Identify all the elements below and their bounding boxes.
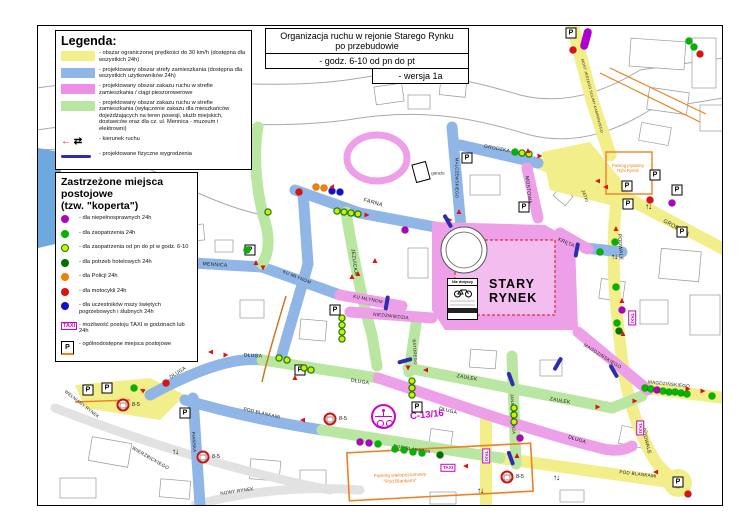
street-label: ZAUŁEK bbox=[456, 373, 478, 383]
direction-arrow-icon: ▲ bbox=[259, 264, 267, 273]
street-label: DŁUGA bbox=[350, 378, 369, 387]
taxi-stand-label: TAXI bbox=[440, 464, 455, 472]
parking-legend-item: P- ogólnodostępne miejsca postojowe bbox=[61, 341, 192, 355]
parking-spot-dot-yg bbox=[348, 210, 355, 217]
parking-spot-dot-yg bbox=[301, 365, 308, 372]
public-parking-icon: P bbox=[462, 153, 473, 164]
no-stopping-hours: 8-5 bbox=[132, 402, 140, 408]
direction-arrow-icon: ▲ bbox=[222, 351, 231, 359]
parking-legend-items: - dla niepełnosprawnych 24h- dla zaopatr… bbox=[61, 215, 192, 355]
legend-items: - obszar ograniczonej prędkości do 30 km… bbox=[61, 50, 246, 162]
legend-item-text: - obszar ograniczonej prędkości do 30 km… bbox=[99, 50, 246, 63]
parking-spot-dot-purple bbox=[619, 307, 626, 314]
street-label: BATOREGO bbox=[412, 339, 419, 365]
sign-bar bbox=[450, 304, 475, 307]
legend-item: - projektowany obszar zakazu ruchu w str… bbox=[61, 100, 246, 133]
direction-arrow-icon: ▲ bbox=[631, 397, 640, 405]
margin-left bbox=[0, 0, 37, 530]
public-parking-icon: P bbox=[650, 170, 661, 181]
parking-legend-item: TAXI- możliwość postoju TAXI w godzinach… bbox=[61, 322, 192, 335]
direction-arrow-icon: ▲ bbox=[404, 364, 412, 373]
direction-arrow-icon: ▲ bbox=[136, 384, 148, 396]
special-label: garaże bbox=[418, 170, 458, 175]
parking-dot-dkgreen bbox=[61, 259, 79, 267]
parking-spot-dot-green bbox=[709, 393, 716, 400]
direction-arrow-icon: ▲ bbox=[612, 224, 620, 233]
barrier-mark bbox=[384, 295, 390, 310]
public-parking-icon: P bbox=[672, 185, 683, 196]
parking-spot-dot-yg bbox=[339, 329, 346, 336]
parking-spot-dot-green bbox=[244, 247, 251, 254]
public-parking-icon: P bbox=[180, 408, 191, 419]
title-hours: - godz. 6-10 od pn do pt bbox=[265, 53, 469, 69]
parking-legend-item-text: - dla zaopatrzenia od pn do pt w godz. 6… bbox=[79, 244, 188, 251]
parking-spot-dot-yg bbox=[409, 392, 416, 399]
parking-spot-dot-yg bbox=[284, 357, 291, 364]
special-label: C-13/16 bbox=[397, 407, 458, 424]
no-stopping-hours: 8-5 bbox=[516, 474, 524, 480]
street-label: NOWY RYNEK bbox=[220, 486, 254, 496]
direction-arrow-icon: ▲ bbox=[536, 152, 545, 160]
parking-legend-item-text: - dla potrzeb hotelowych 24h bbox=[79, 259, 152, 266]
barrier-mark bbox=[553, 357, 564, 372]
public-parking-icon: P bbox=[83, 385, 94, 396]
sign-bar-dark bbox=[448, 308, 477, 313]
street-label: MOSTOWA bbox=[524, 176, 533, 204]
parking-spot-dot-yg bbox=[511, 419, 518, 426]
two-way-arrow-icon: ↑↓ bbox=[645, 203, 651, 211]
parking-legend-item-text: - dla uczestników mszy świętych pogrzebo… bbox=[79, 302, 192, 315]
legend-item: - obszar ograniczonej prędkości do 30 km… bbox=[61, 50, 246, 63]
no-entry-bike-sign: Nie dotyczy bbox=[447, 278, 478, 320]
street-label: KU MŁYNOM bbox=[353, 294, 383, 305]
no-stopping-sign-icon bbox=[117, 399, 130, 412]
parking-dot-blue bbox=[61, 302, 79, 310]
direction-arrow-icon: ▲ bbox=[684, 385, 693, 393]
parking-spot-dot-purple bbox=[517, 435, 524, 442]
parking-spot-dot-yg bbox=[339, 322, 346, 329]
street-label: MOST JERZEGO SULIMY-KAMIŃSKIEGO bbox=[580, 59, 604, 134]
parking-spot-dot-yg bbox=[511, 405, 518, 412]
direction-arrow-icon: ▲ bbox=[651, 468, 660, 476]
title-box: Organizacja ruchu w rejonie Starego Rynk… bbox=[265, 28, 469, 84]
parking-spot-dot-yg bbox=[276, 355, 283, 362]
stary-rynek-label: STARY RYNEK bbox=[489, 277, 537, 306]
parking-spot-dot-yg bbox=[409, 378, 416, 385]
street-label: DŁUGA bbox=[244, 352, 263, 359]
street-label: PODWALE bbox=[616, 234, 624, 261]
sign-bar bbox=[450, 300, 475, 303]
direction-arrow-icon: ▲ bbox=[699, 387, 708, 395]
margin-bottom bbox=[0, 506, 750, 530]
parking-legend-item-text: - ogólnodostępne miejsca postojowe bbox=[79, 341, 171, 348]
parking-legend-item: - dla motocykli 24h bbox=[61, 288, 192, 296]
parking-legend-item-text: - dla Policji 24h bbox=[79, 273, 118, 280]
street-label: MAGDZIŃSKIEGO bbox=[582, 343, 622, 370]
parking-spot-dot-orange bbox=[313, 184, 320, 191]
parking-spot-dot-green bbox=[614, 320, 621, 327]
parking-spot-dot-green bbox=[512, 149, 519, 156]
direction-arrow-icon: ▲ bbox=[455, 207, 463, 216]
direction-arrow-icon: ▲ bbox=[524, 146, 532, 155]
public-parking-icon: P bbox=[566, 28, 577, 39]
direction-arrow-icon: ▲ bbox=[206, 348, 215, 356]
street-label: KRĘTA bbox=[557, 237, 575, 250]
barrier-mark bbox=[507, 371, 515, 386]
direction-arrow-icon: ▲ bbox=[421, 366, 430, 374]
parking-dot-green bbox=[61, 230, 79, 238]
public-parking-icon: P bbox=[623, 199, 634, 210]
margin-top bbox=[0, 0, 750, 25]
parking-spot-dot-yg bbox=[409, 385, 416, 392]
parking-spot-dot-purple bbox=[669, 200, 676, 207]
parking-spot-dot-green bbox=[612, 239, 619, 246]
parking-spot-dot-green bbox=[410, 449, 417, 456]
parking-spot-dot-green bbox=[613, 284, 620, 291]
direction-arrow-icon: ▲ bbox=[618, 296, 626, 305]
parking-legend-item: - dla niepełnosprawnych 24h bbox=[61, 215, 192, 223]
parking-spot-dot-yg bbox=[339, 336, 346, 343]
direction-arrow-icon: ▲ bbox=[291, 373, 299, 382]
two-way-arrow-icon: ↑↓ bbox=[553, 474, 559, 482]
no-stopping-sign-icon bbox=[501, 471, 514, 484]
sign-text: Nie dotyczy bbox=[448, 279, 477, 286]
barrier-line-icon bbox=[61, 155, 91, 158]
parking-legend-item: - dla potrzeb hotelowych 24h bbox=[61, 259, 192, 267]
parking-spot-dot-green bbox=[401, 447, 408, 454]
taxi-stand-label: TAXI bbox=[636, 420, 644, 435]
no-stopping-sign-icon bbox=[197, 451, 210, 464]
parking-spot-dot-red bbox=[296, 189, 303, 196]
public-parking-icon: P bbox=[102, 383, 113, 394]
parking-legend-panel: Zastrzeżone miejsca postojowe (tzw. "kop… bbox=[55, 172, 198, 362]
street-label: PIAŃSKA bbox=[191, 431, 197, 452]
parking-legend-item: - dla zaopatrzenia od pn do pt w godz. 6… bbox=[61, 244, 192, 252]
margin-right bbox=[723, 0, 750, 530]
parking-spot-dot-yg bbox=[339, 315, 346, 322]
legend-item: - projektowany obszar strefy zamieszkani… bbox=[61, 67, 246, 80]
special-label: Parking prywatny Rybi Rynek bbox=[606, 164, 650, 174]
street-label: FARNA bbox=[363, 197, 383, 208]
two-way-arrow-icon: ↑↓ bbox=[477, 487, 483, 495]
legend-item-text: - projektowany obszar zakazu ruchu w str… bbox=[99, 100, 246, 133]
parking-spot-dot-green bbox=[597, 249, 604, 256]
legend-item: - projektowane fizyczne wygrodzenia bbox=[61, 151, 246, 162]
street-label: NIEDŹWIEDZIA bbox=[373, 312, 409, 321]
parking-spot-dot-yg bbox=[355, 211, 362, 218]
parking-dot-orange bbox=[61, 273, 79, 281]
title-main: Organizacja ruchu w rejonie Starego Rynk… bbox=[265, 28, 469, 54]
traffic-map-page: FARNAMALCZEWSKIEGOGRODZKAGRODZKAMOSTOWAK… bbox=[0, 0, 750, 530]
legend-item-text: - projektowany obszar strefy zamieszkani… bbox=[99, 67, 246, 80]
parking-spot-dot-red bbox=[697, 51, 704, 58]
legend-swatch bbox=[61, 84, 95, 94]
legend-swatch bbox=[61, 51, 95, 61]
street-label: POD BLANKAMI bbox=[243, 406, 281, 419]
parking-legend-title: Zastrzeżone miejsca postojowe (tzw. "kop… bbox=[61, 176, 192, 212]
title-version: - wersja 1a bbox=[372, 68, 469, 84]
parking-spot-dot-red bbox=[163, 380, 170, 387]
parking-legend-item: - dla zaopatrzenia 24h bbox=[61, 230, 192, 238]
direction-arrow-icon: ▲ bbox=[513, 451, 521, 460]
street-label: ZAUŁEK bbox=[549, 396, 571, 406]
parking-legend-item: - dla uczestników mszy świętych pogrzebo… bbox=[61, 302, 192, 315]
public-parking-icon: P bbox=[677, 227, 688, 238]
parking-spot-dot-green bbox=[375, 441, 382, 448]
two-way-arrow-icon: ↑↓ bbox=[611, 253, 617, 261]
no-stopping-sign-icon bbox=[324, 413, 337, 426]
parking-spot-dot-purple bbox=[402, 227, 409, 234]
parking-spot-dot-blue bbox=[337, 189, 344, 196]
public-parking-icon: P bbox=[330, 305, 341, 316]
parking-spot-dot-dkgreen bbox=[437, 452, 444, 459]
direction-arrow-icon: ▲ bbox=[298, 416, 307, 424]
street-label: DŁUGA bbox=[169, 365, 188, 380]
street-label: DŁUGA bbox=[567, 434, 586, 445]
parking-legend-item-text: - możliwość postoju TAXI w godzinach lub… bbox=[79, 322, 192, 335]
parking-spot-dot-yg bbox=[334, 208, 341, 215]
parking-spot-dot-yg bbox=[308, 367, 315, 374]
legend-title: Legenda: bbox=[61, 34, 246, 48]
direction-arrow-icon: ▲ bbox=[371, 256, 379, 265]
street-label: GRODZKA bbox=[483, 144, 510, 155]
public-parking-icon: P bbox=[622, 181, 633, 192]
street-label: KU MŁYNOM bbox=[282, 269, 312, 285]
street-label: WIERZBICKIEGO bbox=[131, 446, 170, 471]
parking-spot-dot-yg bbox=[265, 209, 272, 216]
parking-legend-item: - dla Policji 24h bbox=[61, 273, 192, 281]
street-label: MENNICA bbox=[202, 261, 227, 269]
parking-dot-purple bbox=[61, 215, 79, 223]
public-parking-icon: P bbox=[61, 341, 79, 355]
public-parking-icon: P bbox=[673, 477, 684, 488]
no-stopping-hours: 8-5 bbox=[339, 416, 347, 422]
legend-item-text: - projektowane fizyczne wygrodzenia bbox=[99, 151, 192, 158]
direction-arrows-icon: ← ⇄ bbox=[61, 137, 95, 147]
street-label: MALCZEWSKIEGO bbox=[455, 158, 460, 198]
parking-spot-dot-green bbox=[392, 446, 399, 453]
legend-item-text: - kierunek ruchu bbox=[99, 136, 140, 143]
legend-panel: Legenda: - obszar ograniczonej prędkości… bbox=[55, 30, 252, 170]
public-parking-icon: P bbox=[412, 402, 423, 413]
direction-arrow-icon: ▲ bbox=[461, 462, 470, 470]
taxi-icon: TAXI bbox=[61, 322, 79, 330]
parking-legend-item-text: - dla niepełnosprawnych 24h bbox=[79, 215, 151, 222]
street-label: JATKI bbox=[580, 189, 589, 203]
parking-spot-dot-purple bbox=[357, 439, 364, 446]
legend-item: ← ⇄- kierunek ruchu bbox=[61, 136, 246, 147]
legend-item: - projektowany obszar zakazu ruchu w str… bbox=[61, 83, 246, 96]
taxi-stand-label: TAXI bbox=[628, 310, 636, 325]
legend-item-text: - projektowany obszar zakazu ruchu w str… bbox=[99, 83, 246, 96]
two-way-arrow-icon: ↑↓ bbox=[172, 448, 178, 456]
no-stopping-hours: 8-5 bbox=[212, 454, 220, 460]
parking-spot-dot-purple bbox=[366, 440, 373, 447]
direction-arrow-icon: ▲ bbox=[354, 269, 362, 278]
parking-spot-dot-green bbox=[691, 44, 698, 51]
public-parking-icon: P bbox=[519, 202, 530, 213]
special-label: Parking wielopoziomowy "Pod Blankami" bbox=[342, 471, 457, 486]
parking-legend-item-text: - dla zaopatrzenia 24h bbox=[79, 230, 135, 237]
parking-spot-dot-yg bbox=[511, 412, 518, 419]
direction-arrow-icon: ▲ bbox=[619, 329, 627, 338]
parking-legend-item-text: - dla motocykli 24h bbox=[79, 288, 126, 295]
parking-spot-dot-red bbox=[685, 491, 692, 498]
parking-spot-dot-red bbox=[570, 47, 577, 54]
taxi-stand-label: TAXI bbox=[482, 448, 490, 463]
direction-arrow-icon: ▲ bbox=[363, 211, 372, 219]
parking-spot-dot-yg bbox=[341, 209, 348, 216]
bicycle-icon bbox=[453, 287, 473, 298]
legend-swatch bbox=[61, 101, 95, 111]
direction-arrow-icon: ▲ bbox=[601, 183, 610, 191]
parking-spot-dot-green bbox=[419, 450, 426, 457]
parking-dot-yg bbox=[61, 244, 79, 252]
parking-dot-red bbox=[61, 288, 79, 296]
c13-16-sign-icon bbox=[371, 404, 396, 429]
direction-arrow-icon: ▲ bbox=[594, 403, 603, 411]
legend-swatch bbox=[61, 68, 95, 78]
